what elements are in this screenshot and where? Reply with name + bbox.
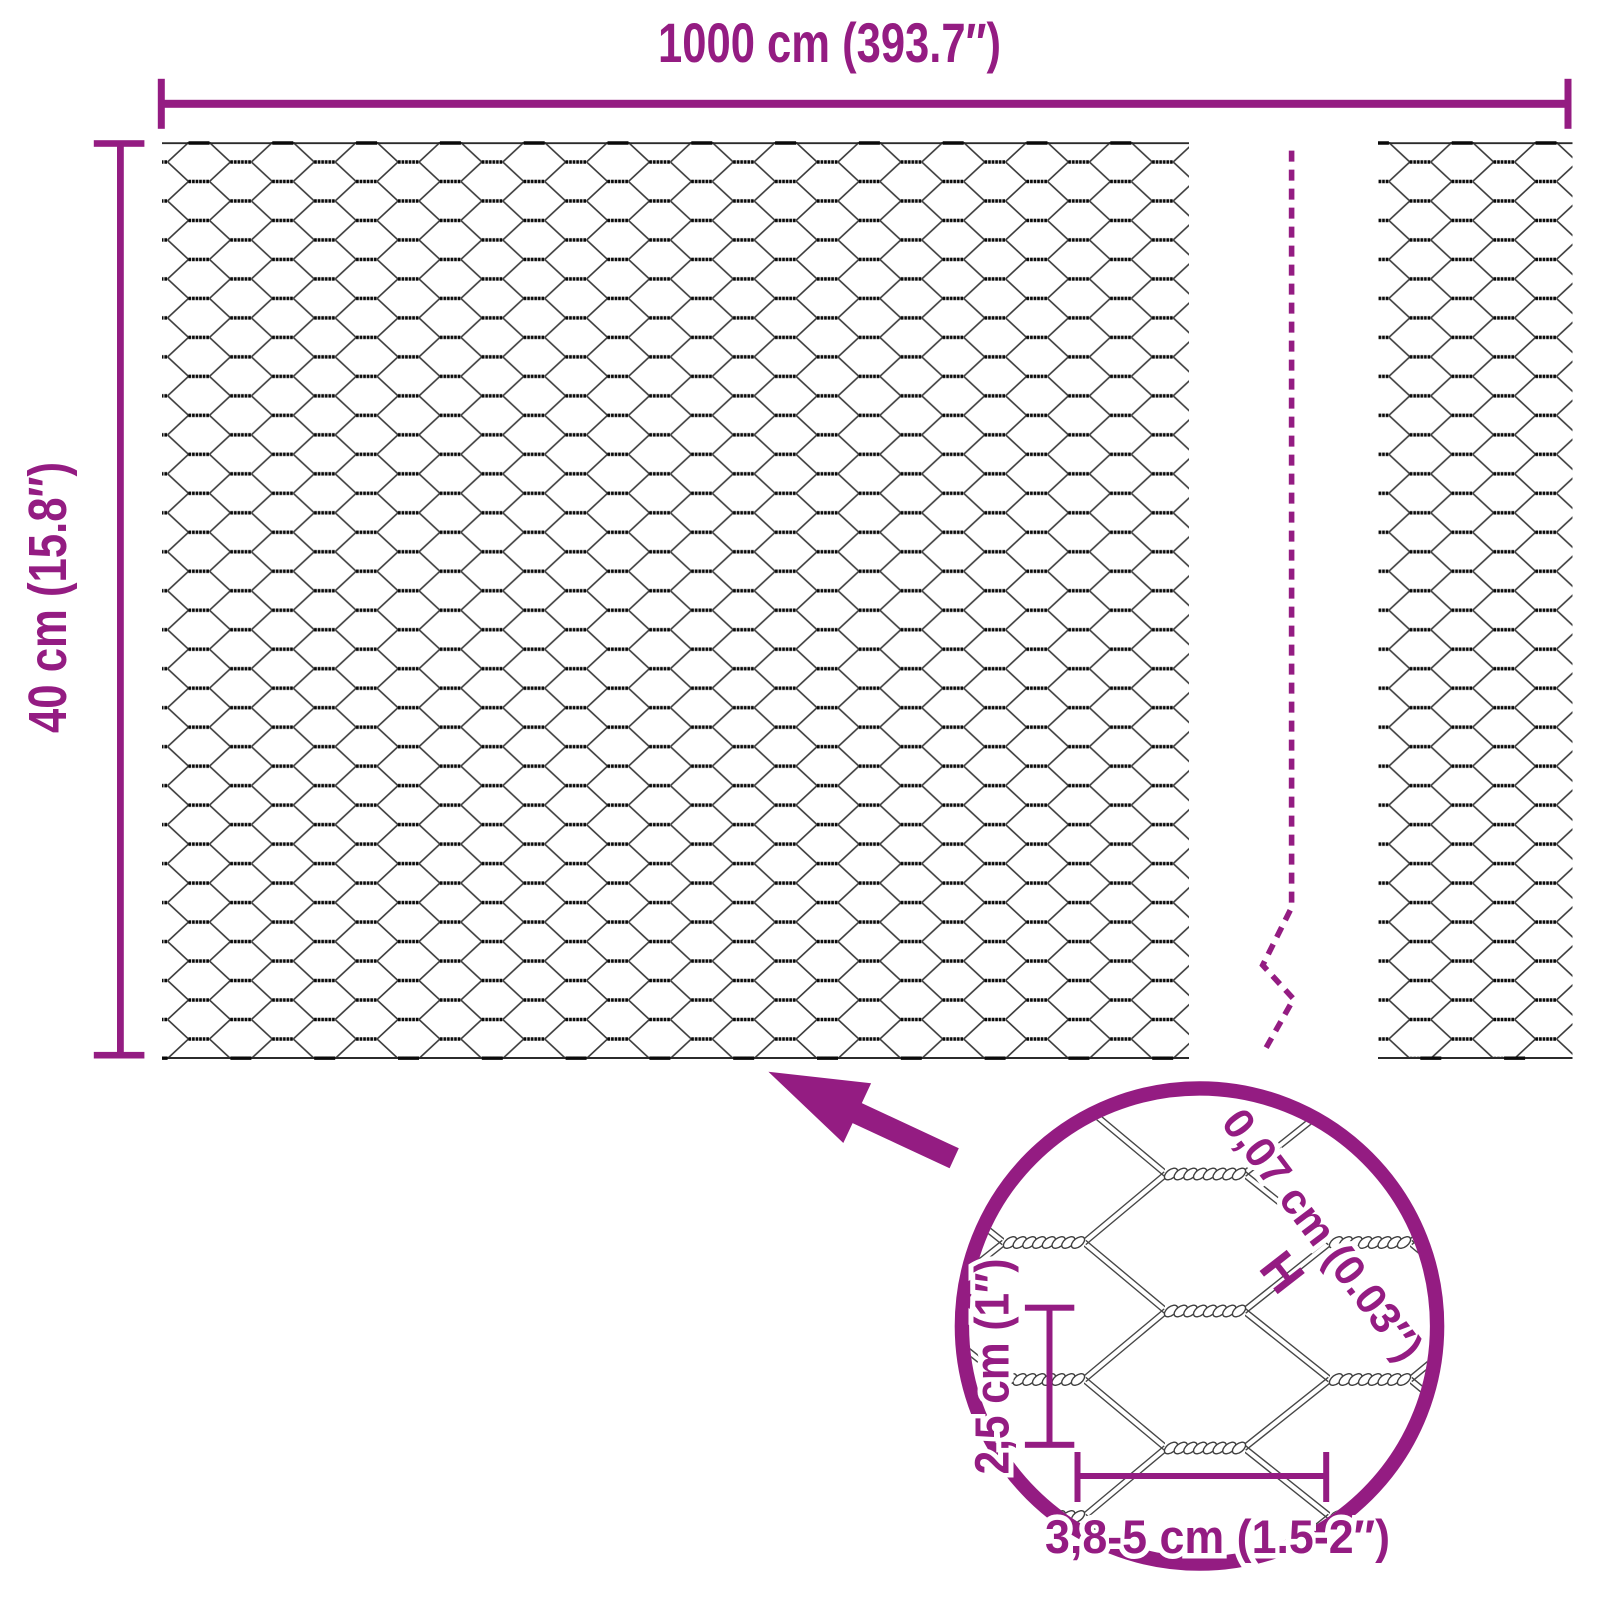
svg-text:2,5 cm (1″): 2,5 cm (1″) — [967, 1259, 1020, 1475]
svg-text:40 cm (15.8″): 40 cm (15.8″) — [18, 462, 78, 733]
svg-text:1000 cm (393.7″): 1000 cm (393.7″) — [658, 11, 1001, 74]
svg-text:3,8-5 cm (1.5-2″): 3,8-5 cm (1.5-2″) — [1045, 1510, 1390, 1563]
